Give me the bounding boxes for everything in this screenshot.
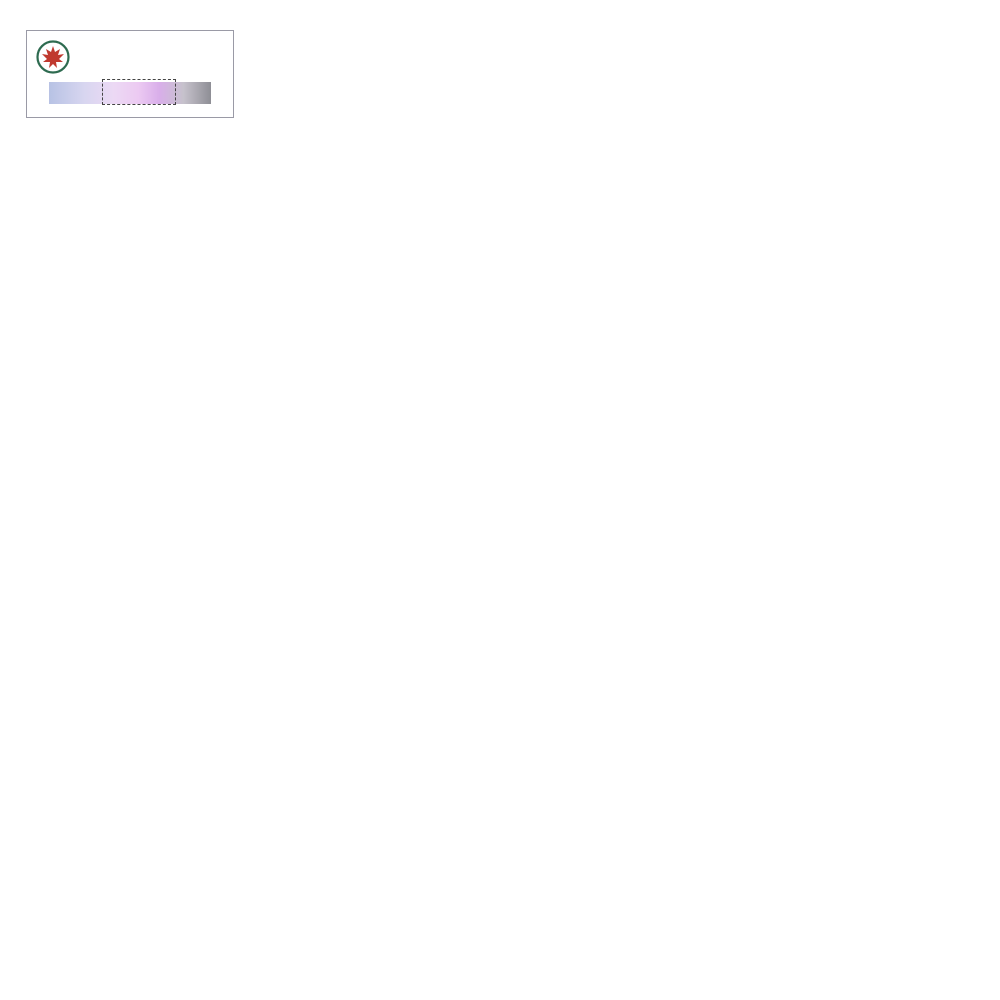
mag-gradient-bar	[49, 82, 211, 104]
map-canvas	[0, 0, 1000, 1000]
target-intensity-box	[102, 79, 175, 105]
legend-panel	[26, 30, 234, 118]
company-logo	[35, 39, 227, 75]
maple-leaf-logo-icon	[35, 39, 71, 75]
map-page: { "axes": { "x_ticks": [{"x":40,"label":…	[0, 0, 1000, 1000]
